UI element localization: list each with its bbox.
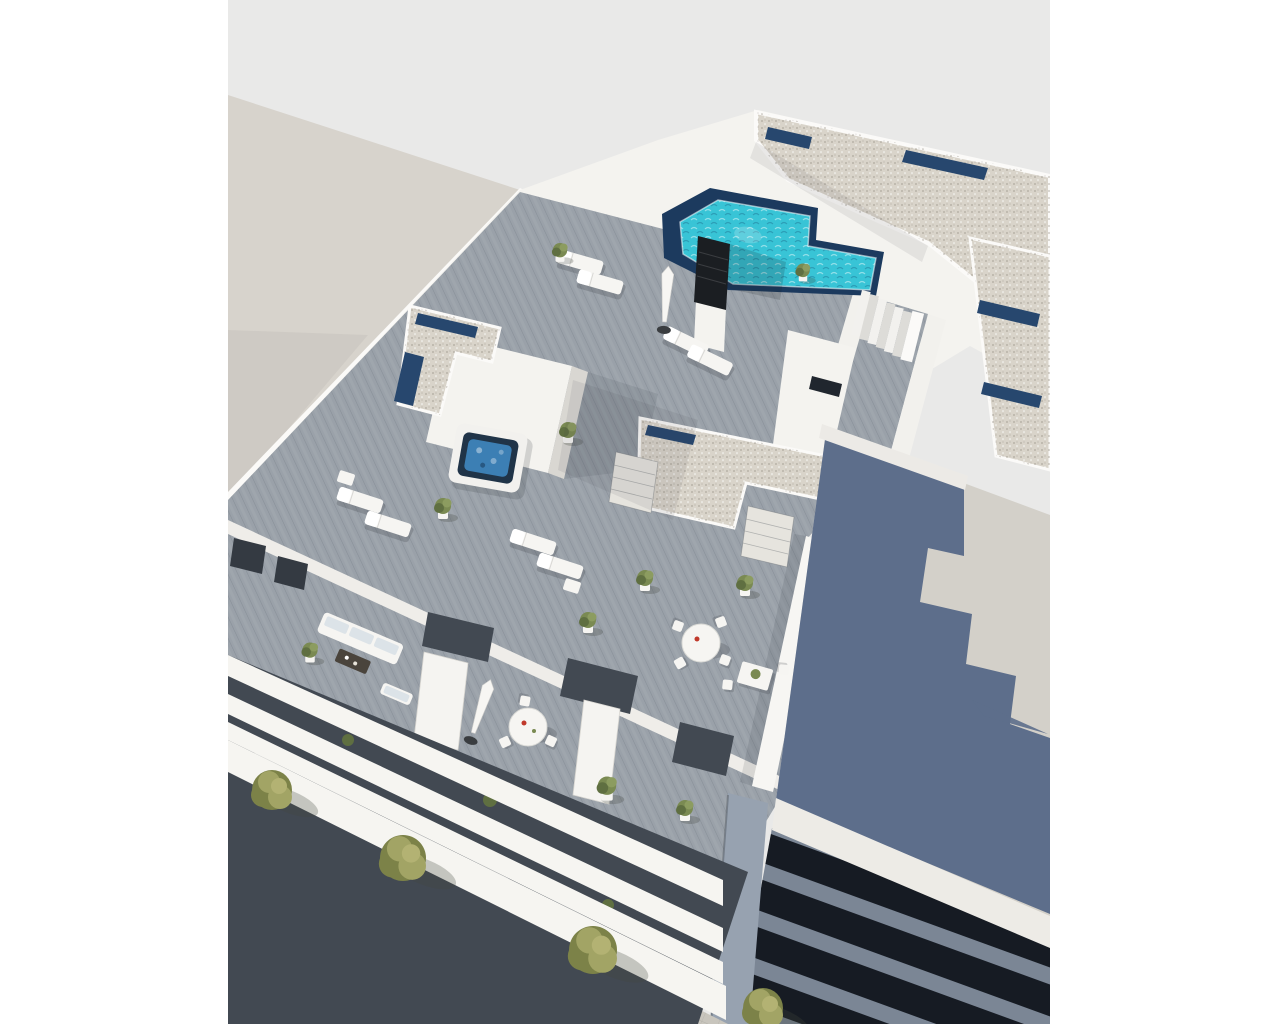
jacuzzi xyxy=(446,422,534,501)
screenshot-canvas xyxy=(0,0,1280,1024)
render-scene xyxy=(228,0,1050,1024)
render-photo xyxy=(228,0,1050,1024)
